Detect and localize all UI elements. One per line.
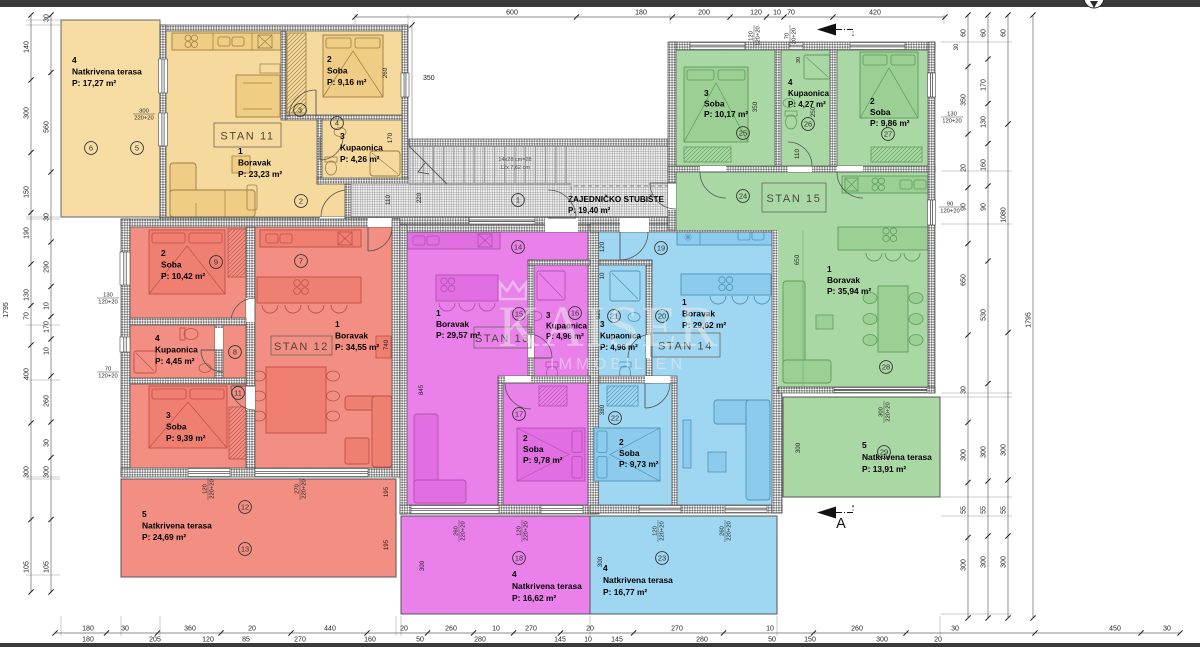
svg-text:29: 29: [880, 448, 888, 457]
svg-text:120+20: 120+20: [940, 209, 960, 215]
svg-text:Boravak: Boravak: [238, 158, 271, 168]
svg-text:350: 350: [423, 75, 435, 82]
svg-text:P: 35,94 m²: P: 35,94 m²: [827, 286, 871, 296]
svg-text:A: A: [836, 516, 846, 532]
svg-text:10: 10: [584, 637, 592, 644]
svg-text:4: 4: [335, 119, 339, 128]
svg-text:2: 2: [523, 433, 528, 443]
svg-text:25: 25: [739, 129, 747, 138]
svg-text:220+20: 220+20: [302, 479, 308, 499]
svg-text:10: 10: [492, 626, 500, 633]
svg-text:120: 120: [653, 526, 659, 536]
svg-text:6: 6: [89, 144, 93, 153]
svg-text:55: 55: [1001, 506, 1008, 514]
svg-text:4: 4: [155, 333, 160, 343]
svg-text:2: 2: [299, 197, 303, 206]
svg-text:1795: 1795: [1026, 312, 1033, 328]
svg-text:170: 170: [44, 321, 51, 333]
svg-text:220+20: 220+20: [134, 116, 154, 122]
svg-text:20: 20: [248, 626, 256, 633]
svg-text:360: 360: [184, 626, 196, 633]
svg-text:270: 270: [295, 484, 301, 494]
svg-text:70: 70: [105, 367, 111, 373]
svg-text:50: 50: [768, 637, 776, 644]
svg-text:300: 300: [139, 109, 149, 115]
svg-text:Natkrivena terasa: Natkrivena terasa: [603, 575, 673, 585]
svg-text:P: 13,91 m²: P: 13,91 m²: [862, 464, 906, 474]
svg-text:300: 300: [44, 466, 51, 478]
svg-text:20: 20: [961, 164, 968, 172]
svg-text:150: 150: [804, 637, 816, 644]
svg-text:120+20: 120+20: [756, 26, 762, 46]
svg-text:Soba: Soba: [166, 422, 187, 432]
svg-text:300: 300: [961, 559, 968, 571]
svg-text:P: 4,45 m²: P: 4,45 m²: [155, 356, 195, 366]
svg-text:30: 30: [961, 386, 968, 394]
svg-text:18: 18: [515, 554, 523, 563]
svg-text:8: 8: [233, 348, 237, 357]
svg-text:Kupaonica: Kupaonica: [788, 89, 829, 98]
svg-text:2: 2: [870, 96, 875, 106]
svg-text:300: 300: [876, 637, 888, 644]
svg-text:440: 440: [324, 626, 336, 633]
svg-text:130: 130: [24, 289, 31, 301]
svg-text:600: 600: [506, 10, 518, 17]
svg-text:22: 22: [611, 414, 619, 423]
svg-text:105: 105: [44, 561, 51, 573]
svg-text:300: 300: [24, 466, 31, 478]
svg-text:270: 270: [671, 626, 683, 633]
svg-text:Soba: Soba: [870, 107, 891, 117]
svg-text:270: 270: [294, 637, 306, 644]
svg-text:60: 60: [1001, 29, 1008, 37]
svg-text:195: 195: [383, 486, 390, 497]
svg-text:1: 1: [827, 264, 832, 274]
svg-text:300: 300: [879, 407, 885, 417]
svg-text:30: 30: [951, 626, 959, 633]
svg-text:12x 7,62 cm: 12x 7,62 cm: [500, 165, 530, 171]
svg-text:2: 2: [161, 248, 166, 258]
svg-text:20: 20: [400, 626, 408, 633]
svg-text:P: 17,27 m²: P: 17,27 m²: [72, 78, 116, 88]
svg-text:120: 120: [749, 31, 755, 41]
svg-text:60: 60: [961, 29, 968, 37]
svg-text:P: 10,17 m²: P: 10,17 m²: [704, 109, 748, 119]
svg-text:90: 90: [961, 203, 968, 211]
svg-text:10: 10: [773, 10, 781, 17]
svg-text:1: 1: [516, 196, 520, 205]
svg-text:105: 105: [24, 561, 31, 573]
svg-text:300: 300: [1001, 556, 1008, 568]
svg-text:P: 10,42 m²: P: 10,42 m²: [161, 271, 205, 281]
svg-text:530: 530: [981, 309, 988, 321]
svg-text:30: 30: [796, 57, 802, 63]
svg-text:300: 300: [24, 107, 31, 119]
svg-text:280: 280: [474, 637, 486, 644]
svg-text:270: 270: [525, 626, 537, 633]
svg-text:205: 205: [149, 637, 161, 644]
svg-text:1: 1: [436, 308, 441, 318]
svg-text:180: 180: [82, 637, 94, 644]
svg-text:9: 9: [214, 258, 218, 267]
svg-text:650: 650: [961, 274, 968, 286]
svg-text:120+20: 120+20: [942, 119, 962, 125]
svg-text:400: 400: [24, 368, 31, 380]
svg-text:300: 300: [795, 442, 802, 453]
svg-text:260: 260: [851, 626, 863, 633]
svg-text:220+20: 220+20: [524, 521, 530, 541]
svg-text:IMMOBILIEN: IMMOBILIEN: [550, 356, 686, 373]
svg-text:140: 140: [24, 41, 31, 53]
svg-text:70: 70: [24, 312, 31, 320]
svg-text:130: 130: [981, 116, 988, 128]
svg-text:3: 3: [298, 106, 302, 115]
svg-text:4: 4: [788, 78, 793, 87]
svg-text:20: 20: [586, 626, 594, 633]
svg-text:Soba: Soba: [619, 448, 640, 458]
svg-text:P: 16,62 m²: P: 16,62 m²: [512, 593, 556, 603]
svg-text:Boravak: Boravak: [335, 331, 368, 341]
svg-text:Boravak: Boravak: [827, 275, 860, 285]
svg-text:70: 70: [787, 10, 795, 17]
svg-text:14x28 cm=28: 14x28 cm=28: [498, 157, 531, 163]
svg-text:3: 3: [340, 131, 345, 141]
svg-text:20: 20: [934, 637, 942, 644]
svg-text:110: 110: [385, 195, 392, 205]
svg-text:30: 30: [44, 213, 51, 221]
svg-text:740: 740: [383, 339, 390, 350]
svg-text:20+20: 20+20: [792, 28, 798, 44]
svg-text:120: 120: [517, 526, 523, 536]
svg-text:Natkrivena terasa: Natkrivena terasa: [512, 581, 582, 591]
svg-text:19: 19: [657, 244, 665, 253]
svg-text:Soba: Soba: [704, 99, 725, 109]
svg-text:450: 450: [1109, 626, 1121, 633]
svg-text:130: 130: [947, 112, 957, 118]
svg-text:350: 350: [752, 101, 759, 112]
svg-text:P: 24,69 m²: P: 24,69 m²: [142, 532, 186, 542]
svg-text:7: 7: [299, 257, 303, 266]
svg-text:145: 145: [554, 637, 566, 644]
svg-text:180: 180: [635, 10, 647, 17]
svg-text:280: 280: [696, 637, 708, 644]
svg-text:160: 160: [364, 637, 376, 644]
svg-text:70: 70: [785, 33, 791, 39]
svg-text:Natkrivena terasa: Natkrivena terasa: [72, 67, 142, 77]
svg-text:P: 9,73 m²: P: 9,73 m²: [619, 459, 659, 469]
svg-text:Natkrivena terasa: Natkrivena terasa: [142, 521, 212, 531]
svg-text:STAN 12: STAN 12: [274, 341, 329, 353]
svg-text:P: 23,23 m²: P: 23,23 m²: [238, 169, 282, 179]
svg-text:260: 260: [720, 526, 726, 536]
svg-text:420: 420: [869, 10, 881, 17]
svg-text:1080: 1080: [1001, 207, 1008, 223]
svg-text:1795: 1795: [3, 302, 10, 318]
svg-text:5: 5: [135, 144, 139, 153]
svg-text:380: 380: [599, 404, 606, 415]
svg-text:300: 300: [981, 556, 988, 568]
svg-text:120+20: 120+20: [98, 374, 118, 380]
svg-text:50: 50: [416, 637, 424, 644]
svg-text:650: 650: [794, 254, 801, 265]
svg-text:Soba: Soba: [161, 260, 182, 270]
svg-text:Soba: Soba: [523, 444, 544, 454]
svg-text:30: 30: [44, 439, 51, 447]
svg-text:Natkrivena terasa: Natkrivena terasa: [862, 452, 932, 462]
svg-text:2: 2: [619, 437, 624, 447]
svg-text:85: 85: [242, 637, 250, 644]
svg-text:170: 170: [981, 79, 988, 91]
svg-text:120+20: 120+20: [98, 300, 118, 306]
svg-text:P: 34,55 m²: P: 34,55 m²: [335, 342, 379, 352]
svg-text:10: 10: [766, 626, 774, 633]
svg-text:26: 26: [804, 120, 812, 129]
svg-text:10: 10: [599, 272, 606, 279]
svg-text:14: 14: [514, 243, 522, 252]
svg-text:300: 300: [597, 556, 604, 567]
svg-text:28: 28: [882, 363, 890, 372]
svg-text:130: 130: [103, 293, 113, 299]
svg-text:55: 55: [981, 506, 988, 514]
svg-text:10: 10: [44, 347, 51, 355]
svg-text:30: 30: [44, 14, 51, 22]
svg-text:195: 195: [383, 539, 390, 550]
svg-text:2: 2: [327, 54, 332, 64]
svg-text:24: 24: [739, 192, 747, 201]
svg-text:27: 27: [884, 130, 892, 139]
svg-text:290: 290: [44, 261, 51, 273]
svg-text:120: 120: [203, 484, 209, 494]
svg-text:10: 10: [44, 302, 51, 310]
svg-text:4: 4: [512, 569, 517, 579]
svg-text:Soba: Soba: [327, 66, 348, 76]
svg-text:220: 220: [416, 192, 423, 203]
svg-text:90: 90: [947, 202, 953, 208]
svg-text:120: 120: [599, 241, 606, 252]
svg-text:160: 160: [981, 159, 988, 171]
svg-text:55: 55: [961, 506, 968, 514]
svg-text:300: 300: [419, 560, 426, 571]
svg-text:120: 120: [202, 637, 214, 644]
svg-text:STAN 11: STAN 11: [220, 131, 274, 143]
svg-text:17: 17: [515, 410, 523, 419]
svg-text:30: 30: [954, 43, 960, 50]
svg-text:Boravak: Boravak: [436, 319, 469, 329]
svg-text:845: 845: [418, 384, 425, 395]
svg-text:260: 260: [44, 395, 51, 407]
svg-text:220+20: 220+20: [886, 402, 892, 422]
svg-text:3: 3: [166, 410, 171, 420]
svg-text:23: 23: [658, 554, 666, 563]
svg-text:60: 60: [981, 29, 988, 37]
svg-text:STAN 15: STAN 15: [766, 193, 821, 205]
svg-text:30: 30: [1163, 626, 1171, 633]
svg-text:300: 300: [961, 449, 968, 461]
svg-text:4: 4: [72, 55, 77, 65]
svg-text:P: 9,16 m²: P: 9,16 m²: [327, 77, 367, 87]
svg-text:90: 90: [981, 203, 988, 211]
svg-text:220+20: 220+20: [727, 521, 733, 541]
svg-text:P: 29,57 m²: P: 29,57 m²: [436, 330, 480, 340]
svg-text:30: 30: [121, 626, 129, 633]
svg-text:12: 12: [241, 503, 249, 512]
svg-text:110: 110: [794, 149, 801, 159]
svg-text:1: 1: [238, 146, 243, 156]
svg-text:180: 180: [82, 626, 94, 633]
svg-text:260: 260: [454, 526, 460, 536]
svg-text:✳: ✳: [683, 232, 692, 244]
svg-text:220+20: 220+20: [210, 479, 216, 499]
svg-text:150: 150: [24, 186, 31, 198]
svg-text:P: 9,39 m²: P: 9,39 m²: [166, 433, 206, 443]
svg-text:300: 300: [1001, 444, 1008, 456]
svg-text:260: 260: [382, 67, 389, 78]
svg-text:P: 9,78 m²: P: 9,78 m²: [523, 455, 563, 465]
svg-text:3: 3: [704, 88, 709, 98]
svg-text:250: 250: [810, 106, 817, 117]
svg-text:P: 9,86 m²: P: 9,86 m²: [870, 118, 910, 128]
svg-text:1: 1: [335, 319, 340, 329]
svg-text:5: 5: [862, 440, 867, 450]
svg-text:220+20: 220+20: [660, 521, 666, 541]
svg-text:145: 145: [611, 637, 623, 644]
svg-text:Kupaonica: Kupaonica: [155, 345, 198, 355]
svg-text:5: 5: [142, 509, 147, 519]
svg-text:200: 200: [698, 10, 710, 17]
svg-text:ZAJEDNIČKO STUBIŠTE: ZAJEDNIČKO STUBIŠTE: [568, 193, 665, 204]
svg-text:170: 170: [387, 132, 394, 143]
svg-text:300: 300: [981, 446, 988, 458]
svg-text:11: 11: [234, 389, 242, 398]
svg-text:KAISER: KAISER: [498, 294, 719, 359]
svg-text:260: 260: [445, 626, 457, 633]
svg-text:Kupaonica: Kupaonica: [340, 143, 383, 153]
svg-text:P: 16,77 m²: P: 16,77 m²: [603, 587, 647, 597]
svg-text:P: 4,26 m²: P: 4,26 m²: [340, 154, 380, 164]
svg-text:P: 4,27 m²: P: 4,27 m²: [788, 100, 826, 109]
svg-text:120: 120: [750, 10, 762, 17]
svg-text:220+20: 220+20: [461, 521, 467, 541]
svg-text:560: 560: [44, 121, 51, 133]
svg-text:350: 350: [961, 94, 968, 106]
svg-text:190: 190: [24, 227, 31, 239]
svg-text:13: 13: [241, 545, 249, 554]
